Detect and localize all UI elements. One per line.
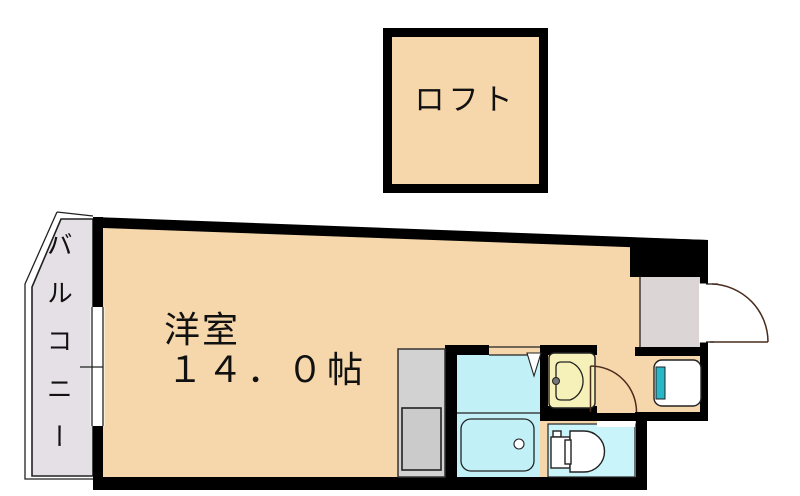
- room-name-label: 洋室: [164, 311, 240, 349]
- bathroom: [457, 347, 541, 477]
- wall-toilet-doorhead: [597, 413, 635, 421]
- floor-plan-canvas: [0, 0, 800, 496]
- vanity-unit: [549, 353, 595, 408]
- entry-door: [699, 284, 768, 343]
- toilet-room: [548, 424, 635, 477]
- wall-bottom: [93, 477, 647, 490]
- toilet-seat-hinge: [565, 440, 571, 464]
- room-size-label: １４．０帖: [167, 351, 367, 389]
- kitchen-unit: [398, 349, 445, 477]
- wall-bath-left: [445, 345, 457, 477]
- entry-floor: [640, 277, 702, 347]
- loft-label: ロフト: [383, 85, 548, 117]
- kitchen-sink: [402, 408, 441, 470]
- wall-entry-bottom: [635, 347, 703, 356]
- washer-accent-bar: [656, 367, 665, 399]
- wall-bath-top: [445, 345, 489, 355]
- toilet-bowl: [570, 431, 605, 472]
- toilet-button: [553, 431, 561, 437]
- floor-plan: ロフト 洋室 １４．０帖 バルコニー: [0, 0, 800, 496]
- wall-top-right-block: [630, 238, 708, 278]
- entry-door-swing-arc: [712, 284, 768, 342]
- entry-door-gap: [699, 284, 709, 343]
- entry-hall: [640, 277, 702, 347]
- balcony-outer-top-line: [57, 212, 93, 216]
- bathtub-drain: [514, 439, 524, 449]
- balcony-label: バルコニー: [44, 231, 71, 471]
- bathroom-floor: [457, 355, 540, 477]
- wall-toilet-right: [636, 418, 647, 490]
- toilet-door-threshold: [597, 421, 635, 427]
- washer-space: [654, 360, 701, 406]
- washbasin-faucet: [553, 378, 560, 385]
